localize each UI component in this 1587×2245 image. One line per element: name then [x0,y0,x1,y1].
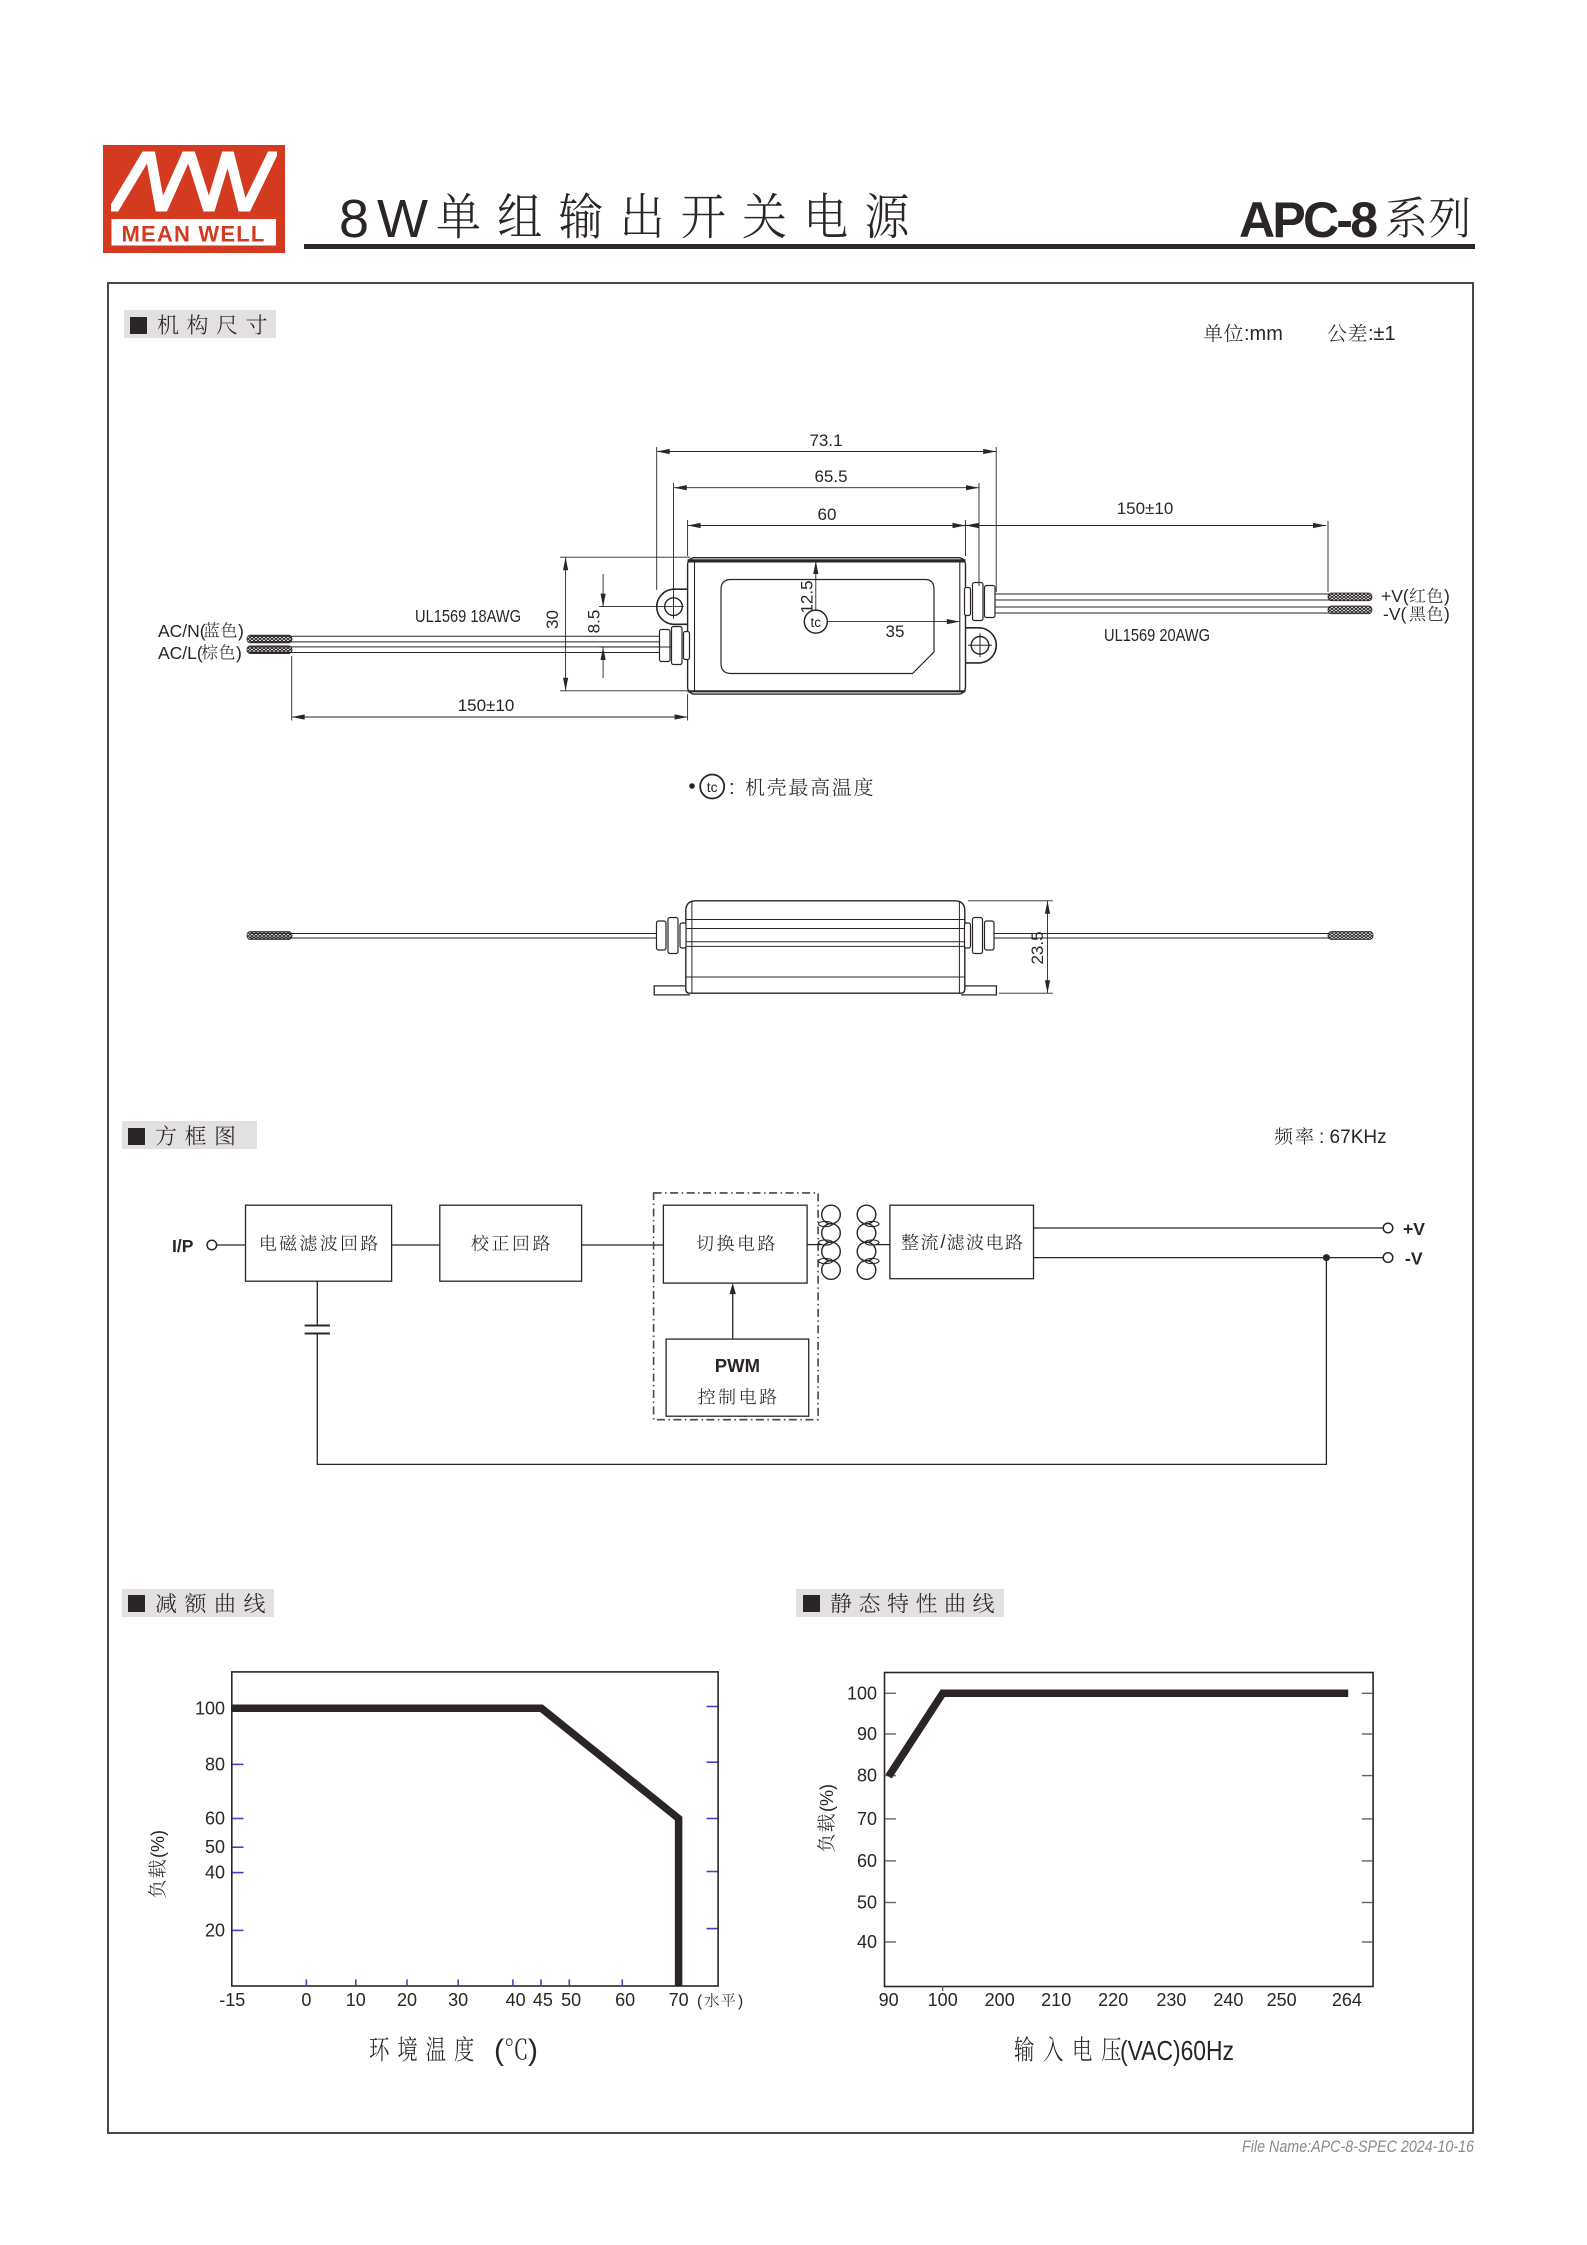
svg-text:0: 0 [301,1990,311,2010]
svg-text:(: ( [494,2034,504,2067]
svg-text:-V: -V [1405,1249,1423,1269]
svg-text:264: 264 [1332,1990,1362,2010]
svg-text:50: 50 [205,1837,225,1857]
svg-text:-15: -15 [219,1990,245,2010]
svg-text:100: 100 [928,1990,958,2010]
svg-text:8W: 8W [339,189,436,249]
svg-text:70: 70 [669,1990,689,2010]
svg-text:UL1569 20AWG: UL1569 20AWG [1104,625,1210,645]
svg-text:80: 80 [857,1766,877,1786]
svg-text:50: 50 [561,1990,581,2010]
svg-text:tc: tc [707,779,718,795]
svg-text:40: 40 [506,1990,526,2010]
svg-text:230: 230 [1156,1990,1186,2010]
svg-text:60: 60 [857,1851,877,1871]
svg-text:73.1: 73.1 [809,431,842,450]
svg-text:150±10: 150±10 [1117,499,1174,518]
svg-text:I/P: I/P [172,1236,194,1256]
svg-text:-V(: -V( [1383,604,1407,624]
svg-text:30: 30 [543,610,562,629]
svg-text::mm: :mm [1244,323,1283,345]
svg-text:: 67KHz: : 67KHz [1319,1127,1387,1148]
svg-text:20: 20 [205,1920,225,1940]
svg-text:35: 35 [886,622,905,641]
svg-text:30: 30 [448,1990,468,2010]
svg-text:+V: +V [1403,1219,1425,1239]
svg-text::: : [729,777,735,799]
svg-text:/: / [941,1232,946,1252]
svg-text:): ) [738,1993,743,2010]
svg-text:23.5: 23.5 [1028,931,1047,964]
svg-text:(%): (%) [817,1784,837,1812]
svg-text:): ) [528,2034,538,2067]
svg-text:): ) [236,643,242,663]
svg-text:65.5: 65.5 [814,467,847,486]
svg-text:): ) [238,621,244,641]
svg-text:10: 10 [346,1990,366,2010]
svg-text:AC/L(: AC/L( [158,643,203,663]
svg-text:PWM: PWM [715,1355,760,1376]
svg-text:210: 210 [1041,1990,1071,2010]
svg-text:tc: tc [811,615,822,630]
svg-text:40: 40 [857,1932,877,1952]
svg-text:90: 90 [879,1990,899,2010]
svg-text:20: 20 [397,1990,417,2010]
svg-text:100: 100 [847,1683,877,1703]
svg-text:8.5: 8.5 [585,610,604,634]
svg-text:100: 100 [195,1698,225,1718]
svg-text:40: 40 [205,1863,225,1883]
svg-text:60: 60 [615,1990,635,2010]
svg-text:UL1569 18AWG: UL1569 18AWG [415,606,521,626]
svg-text:AC/N(: AC/N( [158,621,206,641]
svg-text::±1: :±1 [1368,323,1396,345]
svg-text:220: 220 [1098,1990,1128,2010]
svg-text:70: 70 [857,1809,877,1829]
svg-text:): ) [1444,604,1450,624]
svg-text:60: 60 [818,505,837,524]
svg-text:): ) [1444,586,1450,606]
svg-text:(: ( [697,1993,703,2010]
svg-text:+V(: +V( [1381,586,1409,606]
svg-text:45: 45 [533,1990,553,2010]
svg-text:200: 200 [985,1990,1015,2010]
svg-text:60: 60 [205,1809,225,1829]
svg-text:(VAC)60Hz: (VAC)60Hz [1120,2035,1234,2066]
svg-text:150±10: 150±10 [458,696,515,715]
svg-text:File Name:APC-8-SPEC 2024-10-1: File Name:APC-8-SPEC 2024-10-16 [1242,2138,1475,2156]
svg-text:APC-8: APC-8 [1239,192,1378,248]
svg-text:MEAN WELL: MEAN WELL [121,222,265,247]
svg-text:250: 250 [1267,1990,1297,2010]
svg-text:240: 240 [1213,1990,1243,2010]
svg-text:90: 90 [857,1724,877,1744]
svg-text:12.5: 12.5 [798,580,817,613]
svg-text:50: 50 [857,1893,877,1913]
svg-text:(%): (%) [148,1830,168,1858]
svg-text:80: 80 [205,1754,225,1774]
